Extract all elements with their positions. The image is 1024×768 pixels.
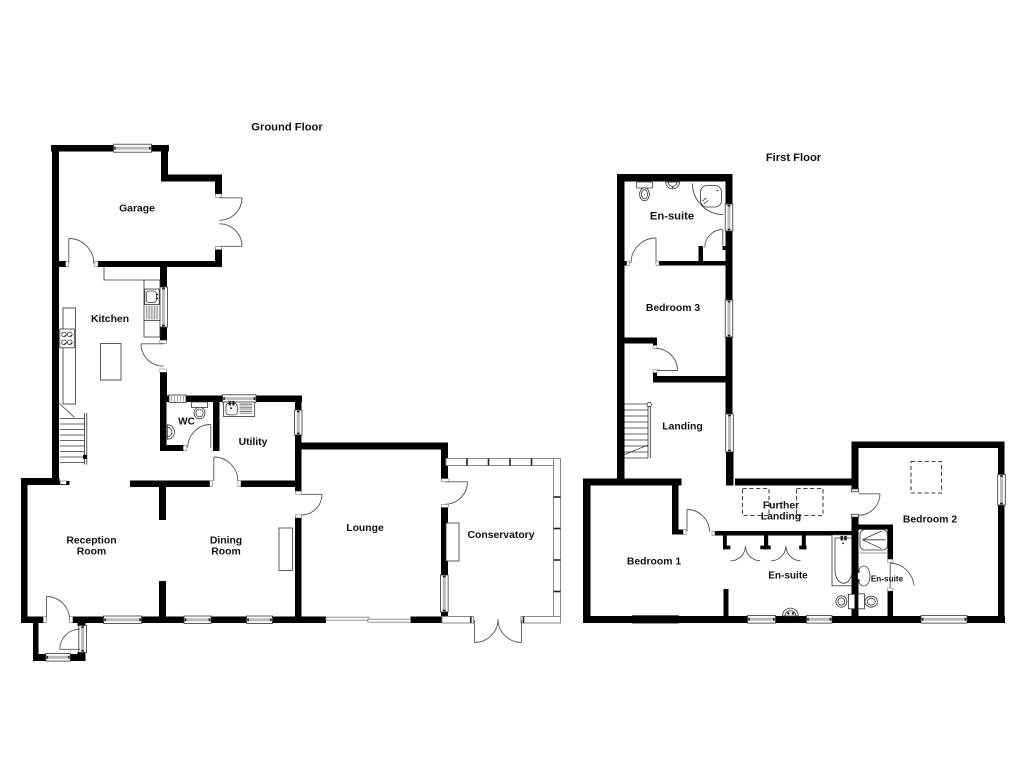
svg-text:Room: Room (77, 547, 106, 558)
svg-text:Kitchen: Kitchen (91, 314, 129, 325)
svg-text:First Floor: First Floor (766, 152, 822, 164)
svg-text:WC: WC (178, 417, 195, 428)
svg-text:En-suite: En-suite (768, 571, 808, 582)
svg-text:Conservatory: Conservatory (468, 530, 535, 541)
svg-text:Landing: Landing (662, 422, 702, 433)
svg-text:Landing: Landing (761, 512, 801, 523)
svg-text:Room: Room (211, 547, 240, 558)
svg-text:Garage: Garage (119, 204, 155, 215)
svg-text:Bedroom 3: Bedroom 3 (646, 303, 700, 314)
svg-text:Bedroom 1: Bedroom 1 (627, 557, 681, 568)
svg-text:Lounge: Lounge (346, 523, 384, 534)
svg-text:En-suite: En-suite (650, 211, 694, 223)
svg-text:Dining: Dining (210, 536, 242, 547)
svg-text:Bedroom 2: Bedroom 2 (903, 515, 957, 526)
svg-text:Further: Further (763, 501, 799, 512)
svg-text:Reception: Reception (66, 536, 116, 547)
svg-text:En-suite: En-suite (871, 575, 904, 584)
svg-text:Ground Floor: Ground Floor (251, 122, 323, 134)
svg-text:Utility: Utility (239, 437, 268, 448)
